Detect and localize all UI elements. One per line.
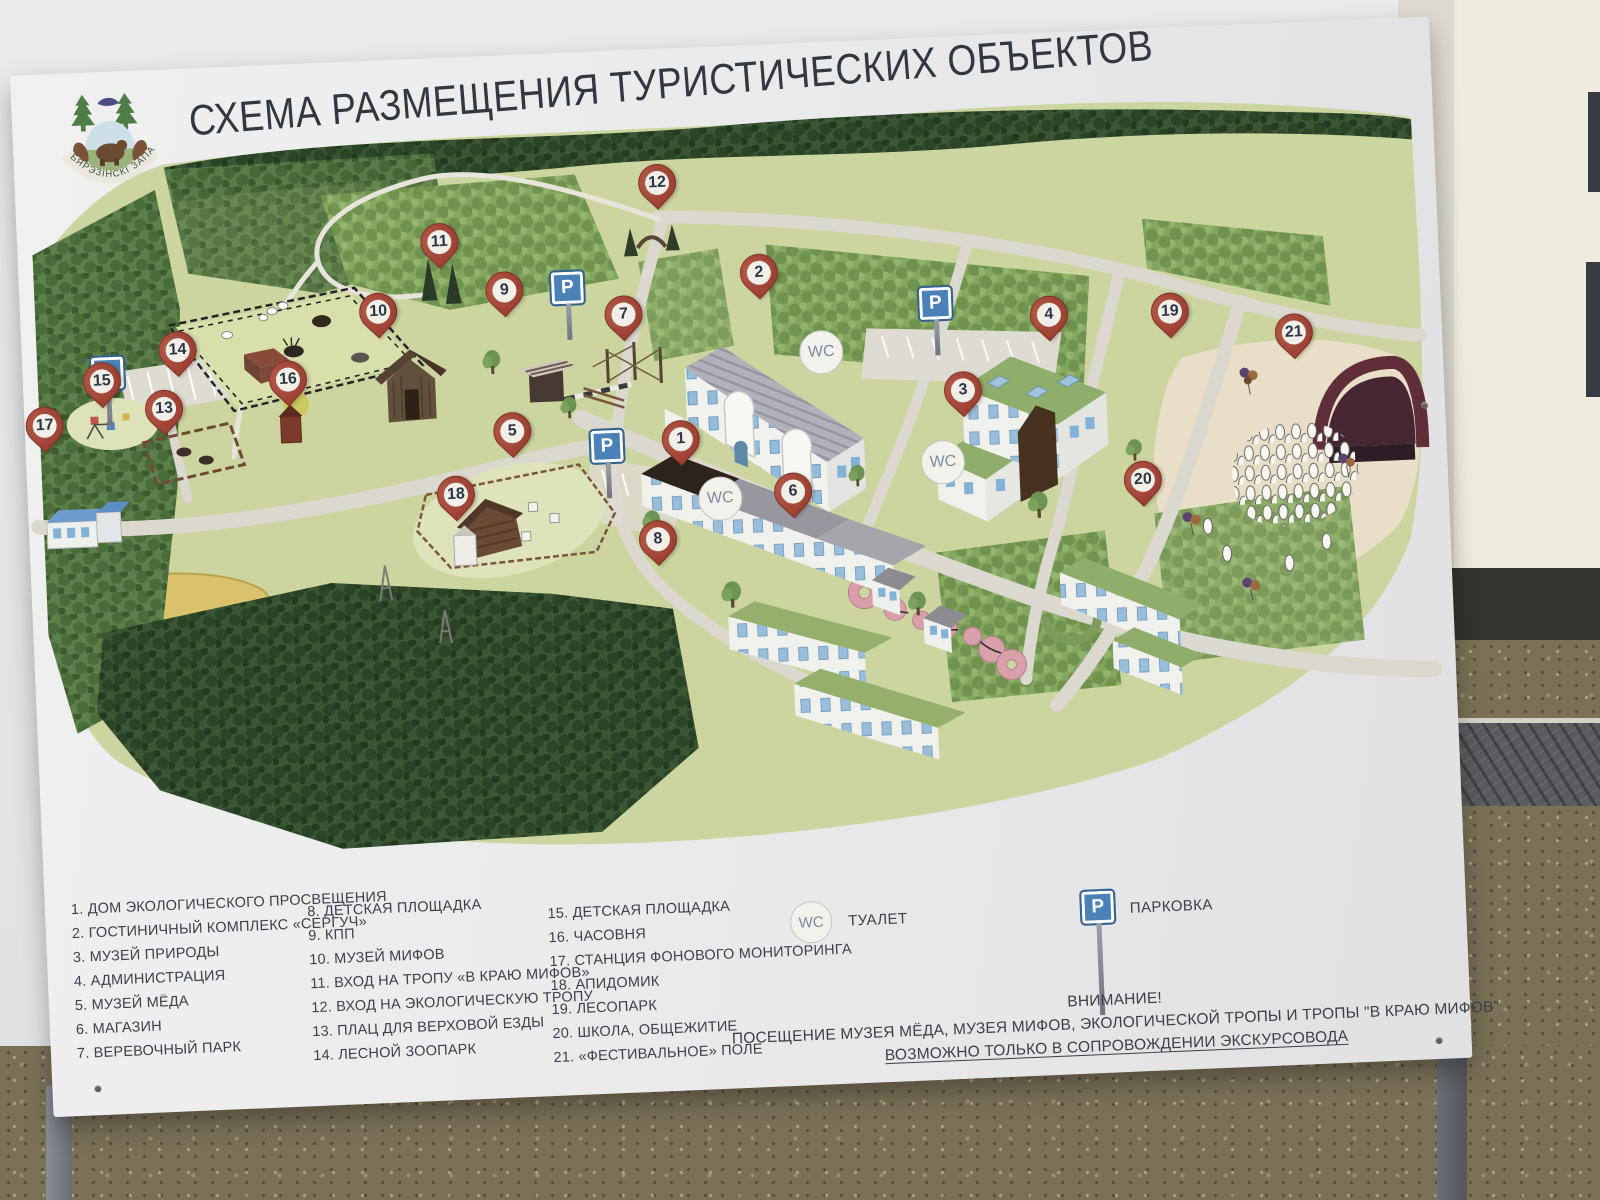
board-post-right (1437, 1052, 1467, 1200)
parking-legend-icon: P (1079, 888, 1116, 925)
parking-legend-label: ПАРКОВКА (1129, 896, 1213, 916)
building-window (1588, 92, 1600, 192)
parking-sign: P (549, 269, 586, 306)
apiary-hut (454, 535, 477, 566)
reserve-logo: БЯРЭЗІНСКІ ЗАПАВЕДНІК (49, 85, 172, 208)
parking-sign: P (917, 285, 954, 322)
building-window (1586, 262, 1600, 397)
information-board: БЯРЭЗІНСКІ ЗАПАВЕДНІК СХЕМА РАЗМЕЩЕНИЯ Т… (10, 17, 1472, 1118)
parking-sign: P (588, 428, 625, 465)
photo-of-map-board: БЯРЭЗІНСКІ ЗАПАВЕДНІК СХЕМА РАЗМЕЩЕНИЯ Т… (0, 0, 1600, 1200)
wc-legend-label: ТУАЛЕТ (848, 910, 908, 929)
wc-legend-icon: WC (789, 900, 833, 944)
logo-bird-icon (97, 98, 119, 107)
legend-parking-row: P ПАРКОВКА (1079, 884, 1214, 930)
legend-wc-row: WC ТУАЛЕТ (789, 897, 908, 944)
